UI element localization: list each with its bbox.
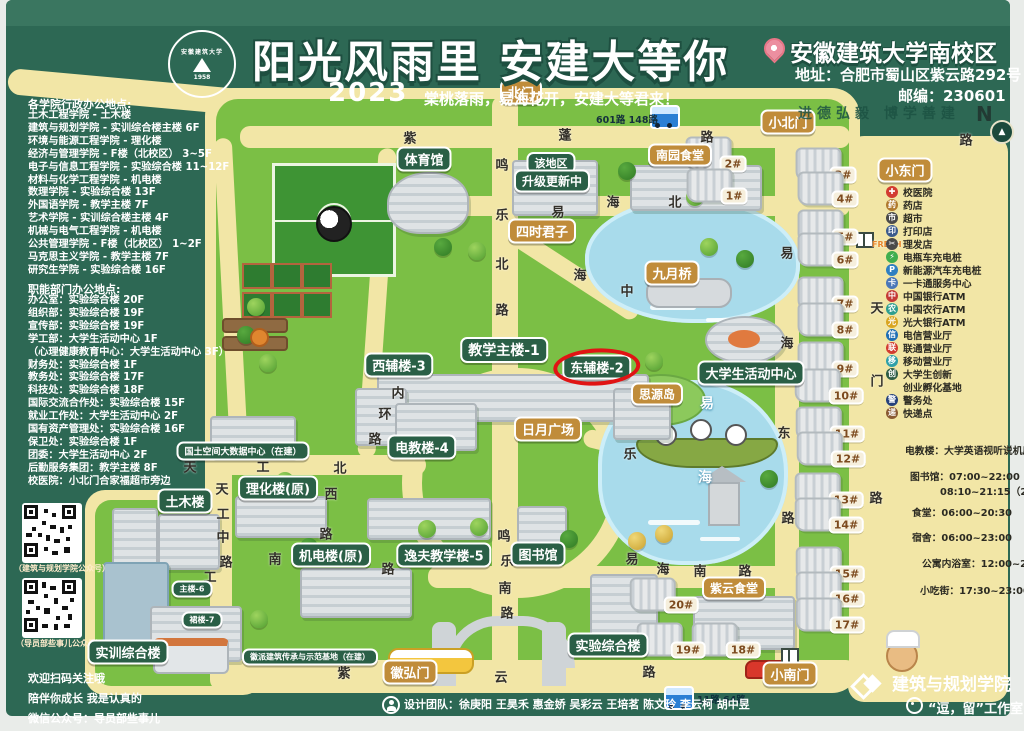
college-list-item: 外国语学院 - 教学主楼 7F	[28, 200, 229, 213]
legend-item: 信 电信营业厅	[886, 329, 981, 340]
legend-item-icon: P	[886, 264, 898, 276]
legend-item-icon: 农	[886, 303, 898, 315]
legend-services: ✚ 校医院 药 药店 市 超市 印 打印店 ✂ 理发店 ⚡ 电瓶车充电桩 P 新…	[886, 186, 981, 418]
activity-center-roof	[728, 330, 760, 348]
follow-text-line: 欢迎扫码关注哦	[28, 670, 160, 686]
legend-item: ⚡ 电瓶车充电桩	[886, 251, 981, 262]
follow-text-line: 陪伴你成长 我是认真的	[28, 690, 160, 706]
legend-item-label: 警务处	[903, 393, 932, 407]
design-team-credits: 设计团队：徐庚阳 王昊禾 惠金娇 吴彩云 王培茗 陈文玲 李云柯 胡中昱	[404, 696, 750, 712]
dept-list-item: 就业工作处：大学生活动中心 2F	[28, 411, 229, 424]
college-list-item: 土木工程学院 - 土木楼	[28, 110, 229, 123]
college-list-item: 环境与能源工程学院 - 理化楼	[28, 136, 229, 149]
person-icon	[382, 696, 400, 714]
college-list: 土木工程学院 - 土木楼建筑与规划学院 - 实训综合楼主楼 6F环境与能源工程学…	[28, 110, 229, 278]
campus-address: 地址：合肥市蜀山区紫云路292号	[795, 64, 1021, 85]
elephant-icon	[906, 697, 923, 714]
legend-item: ✚ 校医院	[886, 186, 981, 197]
legend-item-icon: 递	[886, 407, 898, 419]
legend-item-icon: 联	[886, 342, 898, 354]
university-seal: 安徽建筑大学 1958	[168, 30, 236, 98]
legend-item-icon: 卡	[886, 277, 898, 289]
legend-item-label: 一卡通服务中心	[903, 276, 972, 290]
legend-item-icon: 光	[886, 316, 898, 328]
tree	[300, 538, 318, 556]
legend-item: 创 大学生创新	[886, 368, 981, 379]
legend-item-icon: ⚡	[886, 251, 898, 263]
dept-list-item: 校医院：小北门合家福超市旁边	[28, 476, 229, 489]
legend-item-label: 电瓶车充电桩	[903, 250, 962, 264]
legend-item-label: 移动营业厅	[903, 354, 952, 368]
qr-caption-college: （建筑与规划学院公众号）	[14, 563, 110, 574]
legend-item-label: 中国农行ATM	[903, 302, 965, 316]
follow-text-line: 微信公众号：导员部些事儿	[28, 710, 160, 726]
tree	[434, 238, 452, 256]
huihong-gate-pillar	[542, 622, 566, 686]
legend-item-label: 超市	[903, 211, 923, 225]
legend-item-icon: 警	[886, 394, 898, 406]
studio-name: “逗，留”工作室	[928, 698, 1023, 717]
dept-list-item: （心理健康教育中心：大学生活动中心 3F）	[28, 347, 229, 360]
road-north	[240, 126, 850, 148]
qr-code-counselor	[22, 578, 82, 638]
tree	[760, 470, 778, 488]
poster-title: 阳光风雨里 安建大等你	[252, 26, 729, 90]
legend-item: 递 快递点	[886, 407, 981, 418]
legend-item-icon: 市	[886, 212, 898, 224]
dept-list-item: 科技处：实验综合楼 18F	[28, 385, 229, 398]
lake-wave	[648, 520, 700, 525]
follow-text-block: 欢迎扫码关注哦陪伴你成长 我是认真的微信公众号：导员部些事儿	[28, 670, 160, 726]
college-list-item: 电子与信息工程学院 - 实验综合楼 11~12F	[28, 162, 229, 175]
college-list-item: 经济与管理学院 - F楼（北校区） 3~5F	[28, 149, 229, 162]
building-zi-yun-canteen	[693, 596, 795, 650]
building-civil-tower	[158, 514, 220, 570]
tree	[468, 242, 486, 260]
tree	[655, 525, 673, 543]
tree	[618, 162, 636, 180]
legend-item-label: 校医院	[903, 185, 932, 199]
tree	[470, 518, 488, 536]
legend-item-icon: 中	[886, 290, 898, 302]
boat-rider	[690, 419, 712, 441]
legend-item: 印 打印店	[886, 225, 981, 236]
tree	[686, 188, 704, 206]
legend-item-label: 创业孵化基地	[903, 380, 962, 394]
building-experiment-tower	[590, 574, 658, 652]
legend-item-icon: 移	[886, 355, 898, 367]
legend-item-icon: ✂	[886, 238, 898, 250]
basketball-court	[272, 263, 302, 289]
college-list-item: 数理学院 - 实验综合楼 13F	[28, 187, 229, 200]
legend-item: 警 警务处	[886, 394, 981, 405]
legend-item: P 新能源汽车充电桩	[886, 264, 981, 275]
dept-list-item: 国际交流合作处：实验综合楼 15F	[28, 398, 229, 411]
seal-name: 安徽建筑大学	[181, 47, 223, 56]
building-jidian	[300, 568, 412, 618]
tree	[418, 520, 436, 538]
basketball-court	[272, 292, 302, 318]
legend-item-label: 理发店	[903, 237, 932, 251]
pavilion-roof	[698, 466, 746, 482]
tree	[818, 480, 836, 498]
legend-item-label: 中国银行ATM	[903, 289, 965, 303]
dept-list-item: 组织部：实验综合楼 19F	[28, 308, 229, 321]
school-bus	[388, 648, 474, 674]
north-letter: N	[976, 102, 993, 126]
college-list-item: 机械与电气工程学院 - 机电楼	[28, 226, 229, 239]
legend-item: 中 中国银行ATM	[886, 290, 981, 301]
legend-item: 农 中国农行ATM	[886, 303, 981, 314]
tree	[736, 250, 754, 268]
poster-top-band	[6, 0, 1010, 26]
pavilion-body	[708, 482, 740, 526]
legend-item-icon: ✚	[886, 186, 898, 198]
building-edu-tech	[395, 403, 477, 451]
qr-caption-counselor: （导员部些事儿公众号）	[16, 638, 104, 649]
tree	[276, 472, 294, 490]
legend-item-icon: 创	[886, 368, 898, 380]
tree	[645, 352, 663, 370]
building-civil-tower	[112, 508, 158, 570]
seal-emblem	[193, 58, 211, 72]
campus-map-poster: FRESH 安徽建筑大学 1958 阳光风雨里 安建大等你 2023 棠桃落雨，…	[0, 0, 1024, 731]
basketball-icon	[250, 328, 269, 347]
tree	[700, 238, 718, 256]
legend-item-label: 打印店	[903, 224, 932, 238]
legend-item-label: 电信营业厅	[903, 328, 952, 342]
legend-item-label: 快递点	[903, 406, 932, 420]
qr-pattern	[24, 580, 76, 632]
legend-item-label: 药店	[903, 198, 923, 212]
dept-list-item: 保卫处：实验综合楼 1F	[28, 437, 229, 450]
dept-list-item: 办公室：实验综合楼 20F	[28, 295, 229, 308]
mascot-panda-ball	[316, 206, 352, 242]
legend-item: 药 药店	[886, 199, 981, 210]
dept-list-item: 团委：大学生活动中心 2F	[28, 450, 229, 463]
college-list-item: 艺术学院 - 实训综合楼主楼 4F	[28, 213, 229, 226]
legend-item: ✂ 理发店	[886, 238, 981, 249]
legend-item-label: 联通营业厅	[903, 341, 952, 355]
legend-item-label: 光大银行ATM	[903, 315, 965, 329]
college-list-item: 公共管理学院 - F楼（北校区） 1~2F	[28, 239, 229, 252]
tree	[823, 210, 841, 228]
college-list-item: 建筑与规划学院 - 实训综合楼主楼 6F	[28, 123, 229, 136]
dept-list-item: 后勤服务集团：教学主楼 8F	[28, 463, 229, 476]
college-logo-icon	[852, 672, 886, 698]
lake-wave	[700, 537, 740, 541]
legend-item: 移 移动营业厅	[886, 355, 981, 366]
legend-item: 光 光大银行ATM	[886, 316, 981, 327]
college-list-item: 材料与化学工程学院 - 机电楼	[28, 175, 229, 188]
basketball-court	[242, 263, 272, 289]
college-list-item: 研究生学院 - 实验综合楼 16F	[28, 265, 229, 278]
poster-year: 2023	[328, 78, 408, 108]
tree	[247, 298, 265, 316]
legend-item: 市 超市	[886, 212, 981, 223]
dept-list: 办公室：实验综合楼 20F组织部：实验综合楼 19F宣传部：实验综合楼 19F学…	[28, 295, 229, 489]
dept-list-item: 国有资产管理处：实验综合楼 16F	[28, 424, 229, 437]
dept-list-item: 宣传部：实验综合楼 19F	[28, 321, 229, 334]
tree	[560, 530, 578, 548]
bus-routes-north: 601路 148路	[596, 112, 658, 126]
boat-rider	[725, 424, 747, 446]
college-list-item: 马克思主义学院 - 教学主楼 7F	[28, 252, 229, 265]
qr-pattern	[24, 505, 76, 557]
dept-list-item: 学工部：大学生活动中心 1F	[28, 334, 229, 347]
compass-icon: ▲	[990, 120, 1014, 144]
building-renovation-area	[512, 160, 598, 216]
legend-item: 联 联通营业厅	[886, 342, 981, 353]
poster-subtitle: 棠桃落雨，易海花开，安建大等君来！	[424, 88, 679, 109]
building-gymnasium	[387, 172, 469, 234]
building-east-wing	[613, 388, 671, 440]
tree	[259, 354, 277, 372]
tree	[250, 610, 268, 628]
tree	[628, 532, 646, 550]
chef-doodle	[886, 640, 918, 672]
legend-item: 创业孵化基地	[886, 381, 981, 392]
college-name-footer: 建筑与规划学院	[892, 670, 1011, 695]
dept-list-item: 教务处：实验综合楼 17F	[28, 372, 229, 385]
legend-item-icon: 印	[886, 225, 898, 237]
legend-item-label: 大学生创新	[903, 367, 952, 381]
university-motto: 进德弘毅 博学善建	[798, 103, 960, 123]
road-tiangong-west	[208, 455, 426, 475]
campus-name: 安徽建筑大学南校区	[790, 34, 997, 68]
legend-item: 卡 一卡通服务中心	[886, 277, 981, 288]
basketball-court	[302, 292, 332, 318]
basketball-court	[302, 263, 332, 289]
qr-code-college	[22, 503, 82, 563]
gate-door-icon	[781, 648, 799, 664]
september-bridge	[646, 278, 732, 308]
dept-list-item: 财务处：实验综合楼 1F	[28, 360, 229, 373]
building-orange-hall	[153, 638, 229, 674]
legend-item-label: 新能源汽车充电桩	[903, 263, 981, 277]
legend-item-icon: 信	[886, 329, 898, 341]
legend-item-icon: 药	[886, 199, 898, 211]
seal-year: 1958	[194, 74, 211, 81]
building-lihua	[235, 496, 327, 538]
